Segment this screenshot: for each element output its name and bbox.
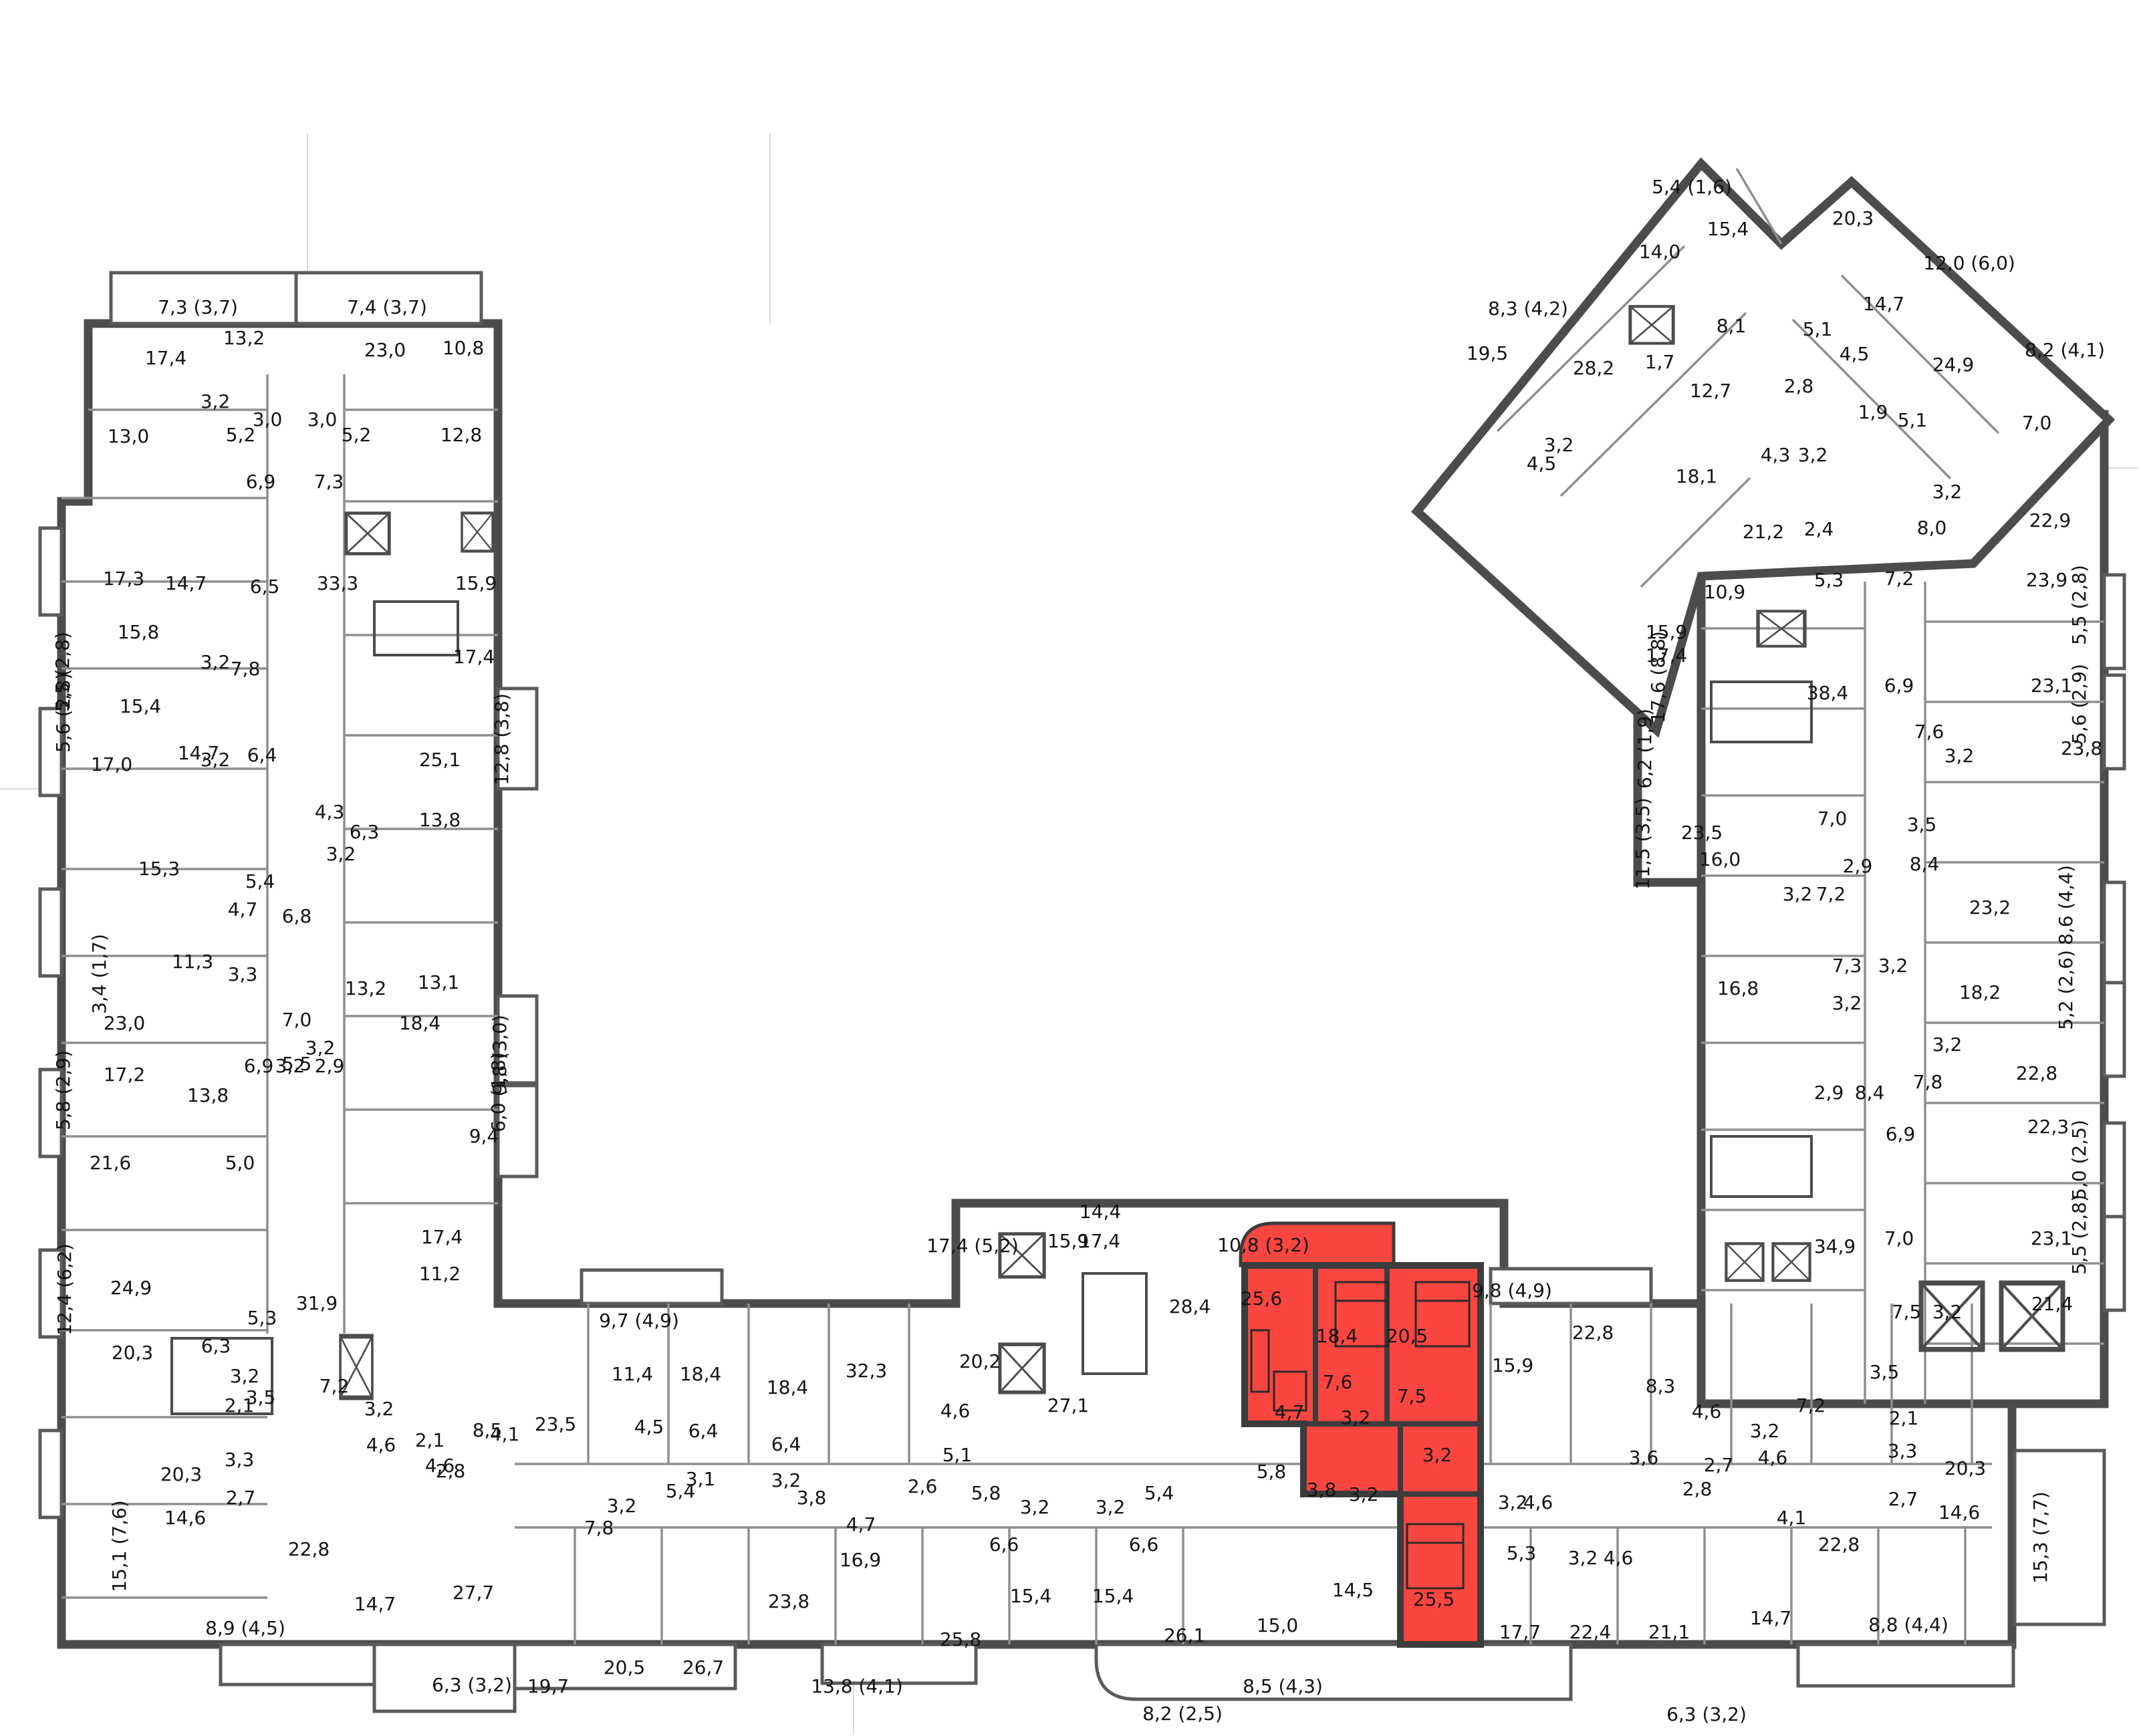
room-area-label: 6,9 [1884,674,1914,697]
room-area-label: 21,1 [1648,1621,1690,1643]
room-area-label: 9,4 [469,1125,499,1147]
room-area-label: 2,7 [1888,1488,1918,1510]
room-area-label: 14,7 [354,1593,396,1615]
room-area-label: 7,0 [2022,412,2052,434]
room-area-label: 27,7 [453,1582,494,1604]
room-area-label: 17,7 [1499,1621,1541,1643]
room-area-label: 14,7 [165,572,207,594]
room-area-label: 25,8 [940,1628,981,1650]
balcony [582,1270,722,1304]
room-area-label: 10,9 [1704,581,1745,603]
room-area-label: 10,8 [443,337,484,359]
room-area-label: 23,9 [2026,569,2067,591]
room-area-label: 3,5 [1907,814,1937,836]
room-area-label: 4,5 [634,1416,664,1438]
room-area-label: 7,3 [314,471,344,493]
room-area-label: 7,3 (3,7) [158,296,238,318]
room-area-label: 20,3 [160,1463,202,1485]
room-area-label: 3,8 [797,1487,827,1509]
room-area-label: 5,2 (2,6) [2055,950,2077,1030]
balcony [40,1431,61,1517]
room-area-label: 3,2 [230,1365,260,1387]
room-area-label: 7,3 [1832,955,1862,977]
room-area-label: 14,7 [1863,293,1904,315]
room-area-label: 23,0 [364,339,406,361]
room-area-label: 4,6 [366,1434,396,1456]
room-area-label: 6,8 [282,905,312,927]
room-area-label: 6,9 [244,1055,274,1077]
room-area-label: 18,4 [767,1376,808,1398]
room-area-label: 16,0 [1699,848,1741,870]
room-area-label: 26,7 [682,1656,724,1679]
room-area-label: 17,4 [145,347,186,369]
room-area-label: 6,4 [771,1433,801,1455]
room-area-label: 5,4 (1,6) [1652,176,1732,198]
balcony [1798,1644,2013,1686]
room-area-label: 3,2 [201,749,231,771]
room-area-label: 6,9 [1886,1123,1916,1145]
room-area-label: 3,2 [1932,1301,1963,1323]
room-area-label: 4,3 [1761,444,1791,466]
room-area-label: 17,2 [104,1064,145,1086]
room-area-label: 8,4 [1910,853,1940,875]
room-area-label: 7,6 [1323,1371,1353,1393]
room-area-label: 3,2 [1341,1406,1371,1429]
balcony [2104,1123,2124,1217]
room-area-label: 23,5 [1681,822,1723,844]
room-area-label: 6,4 [688,1420,719,1442]
room-area-label: 23,1 [2031,1227,2072,1249]
room-area-label: 8,8 (4,4) [1868,1614,1948,1636]
room-area-label: 7,0 [282,1009,312,1031]
room-area-label: 2,6 [908,1475,938,1497]
room-area-label: 11,3 [172,951,213,973]
room-area-label: 25,6 [1241,1287,1282,1310]
room-area-label: 38,4 [1807,682,1848,704]
room-area-label: 13,1 [418,971,459,993]
room-area-label: 3,2 [1932,481,1963,503]
room-area-label: 6,6 [989,1533,1019,1556]
room-area-label: 8,9 (4,5) [205,1617,285,1639]
room-area-label: 25,1 [419,749,461,771]
room-area-label: 8,6 (4,4) [2055,865,2077,945]
balcony [2104,983,2124,1076]
room-area-label: 4,1 [1777,1507,1807,1529]
room-area-label: 4,6 [1523,1491,1553,1513]
room-area-label: 14,0 [1639,241,1680,263]
room-area-label: 7,0 [1817,808,1848,830]
room-area-label: 18,4 [680,1363,721,1385]
room-area-label: 15,9 [1492,1354,1533,1376]
room-area-label: 5,6 (2,8) [52,672,74,753]
room-area-label: 8,4 [1855,1082,1885,1104]
room-area-label: 7,8 [231,658,261,680]
room-area-label: 17,6 (8,8) [1647,631,1669,723]
room-area-label: 19,7 [527,1675,569,1697]
room-area-label: 4,6 [1758,1447,1788,1469]
room-area-label: 13,8 (4,1) [811,1675,903,1697]
room-area-label: 21,2 [1743,521,1784,543]
room-area-label: 6,3 [350,821,380,843]
room-area-label: 3,2 [1932,1033,1963,1056]
room-area-label: 3,2 [1944,745,1975,767]
balcony [2104,882,2124,983]
room-area-label: 13,2 [345,977,386,999]
room-area-label: 1,9 [1858,401,1888,423]
room-area-label: 8,5 (4,3) [1243,1675,1323,1697]
room-area-label: 18,2 [1959,981,2001,1003]
room-area-label: 15,4 [1010,1585,1051,1607]
room-area-label: 11,5 (3,5) [1632,797,1654,890]
room-area-label: 3,2 [201,390,231,412]
room-area-label: 3,2 [607,1495,637,1517]
room-area-label: 7,2 [1884,568,1914,590]
room-area-label: 19,5 [1467,342,1508,364]
room-area-label: 23,8 [2061,737,2102,759]
room-area-label: 5,6 (2,9) [2068,664,2090,744]
room-area-label: 4,7 [1275,1401,1305,1423]
room-area-label: 18,1 [1676,465,1717,487]
room-area-label: 5,5 [282,1053,312,1075]
room-area-label: 7,2 [1816,883,1846,905]
room-area-label: 4,7 [846,1513,876,1535]
room-area-label: 5,2 [226,424,256,446]
room-area-label: 15,9 [455,572,497,594]
room-area-label: 12,4 (6,2) [53,1243,76,1336]
room-area-label: 18,4 [1316,1325,1358,1347]
room-area-label: 2,8 [1784,375,1814,397]
room-area-label: 13,2 [223,327,265,349]
room-area-label: 12,0 (6,0) [1923,252,2015,274]
balcony [2015,1451,2104,1624]
room-area-label: 3,2 [1750,1420,1780,1442]
room-area-label: 6,4 [247,744,277,766]
room-area-label: 5,2 [342,424,372,446]
room-area-label: 8,0 [1917,517,1947,539]
balcony [2104,675,2124,769]
room-area-label: 3,0 [307,408,338,430]
room-area-label: 15,8 [118,621,159,643]
room-area-label: 5,5 (2,8) [2068,565,2090,645]
room-area-label: 2,8 [1682,1478,1713,1500]
room-area-label: 20,5 [604,1656,645,1679]
room-area-label: 3,2 [1096,1496,1126,1518]
room-area-label: 28,4 [1169,1295,1211,1318]
room-area-label: 3,3 [228,963,258,985]
room-area-label: 6,3 (3,2) [432,1674,512,1696]
room-area-label: 24,9 [1932,354,1974,376]
room-area-label: 24,9 [110,1277,152,1299]
balcony [40,528,61,615]
room-area-label: 6,9 [246,471,276,493]
room-area-label: 11,2 [419,1263,461,1285]
balcony [221,1644,374,1685]
room-area-label: 18,4 [399,1012,441,1034]
room-area-label: 15,4 [1707,218,1749,240]
room-area-label: 2,9 [1843,855,1873,877]
room-area-label: 28,2 [1573,357,1614,379]
room-area-label: 5,5 (2,8) [2068,1195,2090,1275]
room-area-label: 31,9 [296,1292,338,1314]
room-area-label: 3,3 [225,1449,255,1471]
room-area-label: 7,2 [320,1375,350,1397]
room-area-label: 12,8 (3,8) [491,693,513,785]
room-area-label: 33,3 [317,572,358,594]
room-area-label: 3,3 [1888,1440,1918,1462]
room-area-label: 6,3 (3,2) [1666,1703,1747,1725]
room-area-label: 5,4 [245,870,275,892]
room-area-label: 3,2 [201,651,231,673]
balcony [40,889,61,976]
room-area-label: 3,0 [253,408,283,430]
balcony [1096,1644,1571,1699]
room-area-label: 5,8 [971,1482,1001,1504]
room-area-label: 26,1 [1164,1624,1205,1646]
room-area-label: 4,6 [1604,1547,1634,1569]
room-area-label: 3,2 [1568,1547,1598,1569]
room-area-label: 14,6 [1938,1501,1980,1523]
room-area-label: 17,4 (5,2) [926,1235,1019,1257]
room-area-label: 22,3 [2027,1116,2069,1138]
balcony [2104,1217,2124,1310]
room-area-label: 3,6 [1629,1447,1659,1469]
room-area-label: 3,2 [1020,1496,1050,1518]
room-area-label: 8,1 [1717,315,1747,337]
room-area-label: 21,4 [2031,1293,2073,1315]
room-area-label: 7,0 [1884,1227,1914,1249]
room-area-label: 2,1 [225,1394,255,1416]
room-area-label: 13,8 [419,809,461,831]
room-area-label: 7,6 [1914,721,1944,743]
room-area-label: 14,5 [1332,1579,1374,1601]
room-area-label: 23,2 [1969,896,2011,918]
room-area-label: 22,8 [288,1538,330,1560]
room-area-label: 20,3 [112,1342,153,1364]
room-area-label: 20,3 [1944,1457,1986,1479]
room-area-label: 3,2 [364,1398,394,1420]
room-area-label: 5,3 [1507,1542,1537,1564]
room-area-label: 15,1 (7,6) [108,1500,130,1592]
room-area-label: 17,4 [421,1226,463,1248]
room-area-label: 7,8 [584,1517,614,1539]
room-area-label: 22,8 [1818,1533,1860,1556]
room-area-label: 3,5 [1870,1361,1900,1383]
room-area-label: 7,4 (3,7) [347,296,427,318]
room-area-label: 14,7 [1750,1607,1791,1629]
room-area-label: 17,3 [103,568,144,590]
room-area-label: 17,4 [453,646,495,668]
room-area-label: 3,2 [1349,1483,1379,1505]
room-area-label: 5,1 [1803,318,1833,340]
room-area-label: 11,4 [612,1363,653,1385]
room-area-label: 6,5 [250,576,280,598]
room-area-label: 8,2 (4,1) [2025,339,2105,361]
room-area-label: 7,8 [1913,1071,1943,1093]
room-area-label: 3,2 [326,843,356,865]
room-area-label: 15,3 [138,858,180,880]
room-area-label: 6,0 (1,8) [487,1052,509,1132]
room-area-label: 5,1 [942,1444,973,1466]
room-area-label: 14,6 [164,1507,206,1529]
room-area-label: 15,0 [1257,1614,1298,1636]
room-area-label: 10,8 (3,2) [1217,1234,1309,1256]
room-area-label: 7,5 [1892,1301,1922,1323]
room-area-label: 5,4 [1144,1482,1174,1504]
room-area-label: 23,5 [535,1413,576,1435]
room-area-label: 16,8 [1717,977,1759,999]
room-area-label: 22,8 [1572,1322,1614,1344]
floor-plan: 7,3 (3,7)7,4 (3,7)17,413,223,010,83,213,… [0,0,2139,1736]
room-area-label: 32,3 [846,1360,887,1382]
room-area-label: 5,8 [1257,1461,1287,1483]
room-area-label: 5,3 [1814,569,1844,591]
room-area-label: 23,0 [104,1012,145,1034]
room-area-label: 7,2 [1796,1394,1826,1416]
room-area-label: 4,6 [1692,1400,1722,1422]
room-area-label: 7,5 [1397,1385,1427,1407]
room-area-label: 17,0 [91,753,132,775]
room-area-label: 8,3 [1646,1375,1676,1397]
room-area-label: 8,5 [473,1419,503,1441]
room-area-label: 8,3 (4,2) [1488,297,1568,320]
room-area-label: 4,3 [315,801,345,823]
room-area-label: 15,4 [120,695,161,717]
room-area-label: 34,9 [1814,1235,1856,1257]
room-area-label: 27,1 [1047,1394,1089,1416]
room-area-label: 2,7 [1704,1454,1734,1476]
room-area-label: 3,2 [1798,444,1828,466]
room-area-label: 21,6 [90,1152,131,1174]
room-area-label: 2,4 [1804,518,1834,540]
room-area-label: 5,0 (2,5) [2068,1120,2090,1200]
room-area-label: 3,4 (1,7) [88,934,110,1014]
room-area-label: 17,4 [1079,1230,1120,1252]
room-area-label: 9,7 (4,9) [599,1310,679,1332]
room-area-label: 13,8 [187,1084,229,1106]
room-area-label: 22,4 [1569,1621,1611,1643]
room-area-label: 6,6 [1129,1533,1159,1556]
room-area-label: 3,2 [1878,955,1908,977]
room-area-label: 6,3 [201,1335,231,1357]
room-area-label: 2,7 [226,1487,256,1509]
room-area-label: 20,3 [1832,207,1874,229]
room-area-label: 22,8 [2016,1062,2057,1084]
room-area-label: 5,3 [247,1307,277,1329]
room-area-label: 5,0 [225,1152,255,1174]
floor-plan-canvas: 7,3 (3,7)7,4 (3,7)17,413,223,010,83,213,… [0,0,2139,1736]
balcony [2104,575,2124,668]
room-area-label: 25,5 [1413,1588,1455,1610]
room-area-label: 13,0 [108,425,149,447]
room-area-label: 2,9 [1814,1082,1844,1104]
room-area-label: 9,8 (4,9) [1472,1279,1552,1301]
room-area-label: 23,1 [2031,674,2072,697]
room-area-label: 2,1 [1889,1407,1919,1429]
room-area-label: 3,8 [1307,1479,1337,1501]
room-area-label: 15,4 [1092,1585,1134,1607]
room-area-label: 4,7 [228,898,258,920]
room-area-label: 5,8 (2,9) [52,1050,74,1130]
room-area-label: 20,2 [959,1350,1001,1372]
room-area-label: 3,2 [1783,883,1813,905]
room-area-label: 3,2 [1832,992,1862,1014]
room-area-label: 4,5 [1527,453,1557,475]
room-area-label: 8,2 (2,5) [1142,1703,1223,1725]
room-area-label: 5,1 [1898,409,1928,431]
room-area-label: 4,6 [425,1455,455,1477]
room-area-label: 12,8 [441,424,482,446]
room-area-label: 1,7 [1645,351,1675,373]
room-area-label: 4,5 [1840,343,1870,365]
room-area-label: 15,3 (7,7) [2029,1491,2051,1584]
room-area-label: 3,2 [1422,1444,1453,1466]
room-area-label: 4,6 [940,1400,971,1422]
room-area-label: 2,1 [415,1429,445,1451]
room-area-label: 14,4 [1080,1201,1121,1223]
room-area-label: 22,9 [2029,509,2071,531]
room-area-label: 23,8 [768,1590,809,1612]
room-area-label: 12,7 [1690,380,1731,402]
room-area-label: 5,4 [666,1480,696,1502]
room-area-label: 16,9 [840,1549,881,1571]
room-area-label: 20,5 [1386,1325,1428,1347]
